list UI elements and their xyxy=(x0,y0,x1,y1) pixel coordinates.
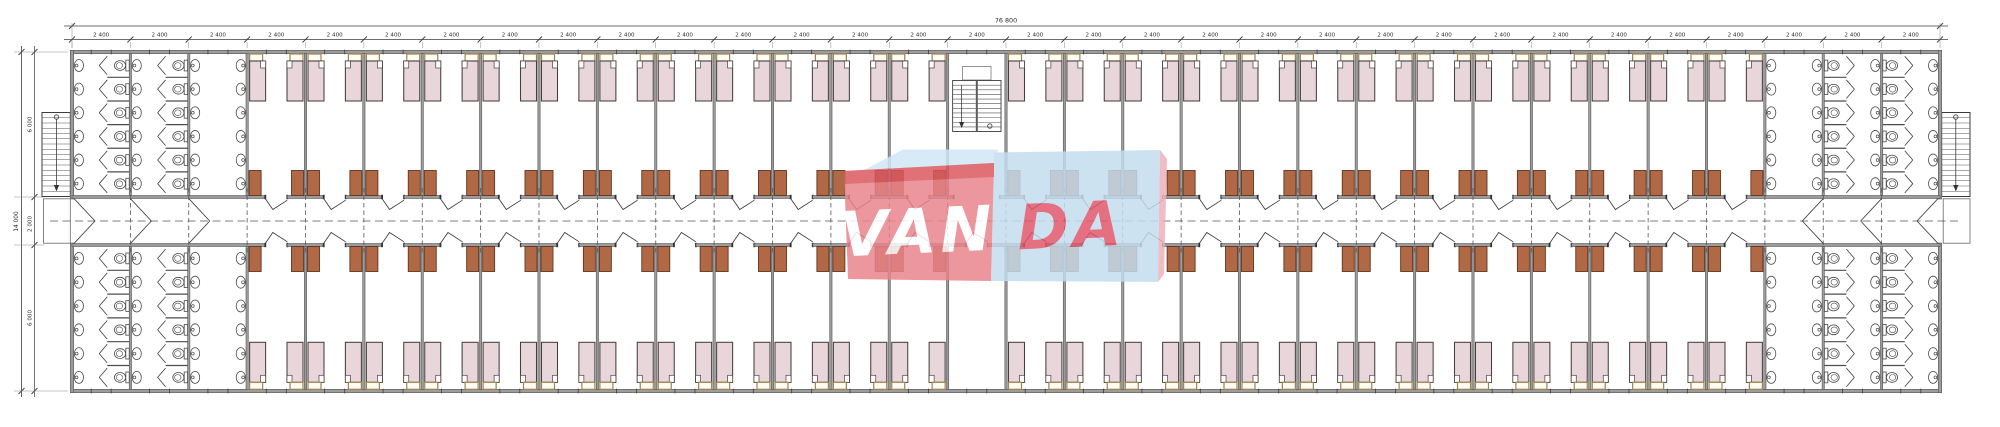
stall-door xyxy=(99,354,107,363)
room-door-swing xyxy=(1550,199,1572,210)
toilet-bowl-inner xyxy=(116,327,122,333)
room xyxy=(1592,233,1646,390)
wall xyxy=(1938,243,1941,393)
bed-pillow-fold xyxy=(1662,375,1667,382)
sink-icon xyxy=(1871,252,1880,264)
room xyxy=(658,233,712,390)
sink-icon xyxy=(191,130,200,142)
module-dim-label: 2 400 xyxy=(385,32,401,38)
wardrobe xyxy=(833,171,845,196)
sink-icon xyxy=(1812,252,1821,264)
module-dim-label: 2 400 xyxy=(327,32,343,38)
room xyxy=(1242,54,1296,210)
toilet-tank xyxy=(1824,107,1827,118)
bedside-locker xyxy=(1125,54,1138,61)
room xyxy=(1709,54,1763,210)
sink-icon xyxy=(1767,130,1776,142)
wall xyxy=(1297,54,1299,196)
bed-pillow-fold xyxy=(462,61,467,68)
stall-door xyxy=(99,80,107,89)
room xyxy=(1300,54,1354,210)
bedside-locker xyxy=(1633,382,1646,389)
wardrobe xyxy=(1226,171,1238,196)
toilet-bowl-inner xyxy=(175,86,181,92)
bedside-locker xyxy=(348,54,361,61)
sink-icon xyxy=(236,276,245,288)
wall xyxy=(713,247,715,390)
bed-pillow-fold xyxy=(669,375,674,382)
bed-pillow-fold xyxy=(553,61,558,68)
sink-icon xyxy=(1767,348,1776,360)
bedside-locker xyxy=(348,382,361,389)
room-door-swing xyxy=(1258,233,1280,244)
bedside-locker xyxy=(1359,54,1372,61)
toilet-bowl-inner xyxy=(116,157,122,163)
door-jamb xyxy=(615,243,617,247)
sink-icon xyxy=(132,276,141,288)
stall-door xyxy=(1846,249,1854,258)
sink-icon xyxy=(236,348,245,360)
stall-door xyxy=(1846,80,1854,89)
stall-door xyxy=(1905,89,1913,98)
corridor-door-swing xyxy=(130,199,151,221)
wall xyxy=(1880,247,1882,390)
door-jamb xyxy=(1257,195,1259,199)
bedside-locker xyxy=(308,54,321,61)
stall-door xyxy=(1905,104,1913,113)
room xyxy=(1475,233,1529,390)
toilet-tank xyxy=(184,60,187,71)
wardrobe xyxy=(408,247,420,272)
wardrobe xyxy=(350,171,362,196)
wall xyxy=(1822,54,1824,196)
stall-door xyxy=(1905,127,1913,136)
bed-pillow-fold xyxy=(1746,61,1751,68)
module-dim-label: 2 400 xyxy=(1144,32,1160,38)
sink-icon xyxy=(191,276,200,288)
bed-pillow-fold xyxy=(1513,61,1518,68)
stall-door xyxy=(1905,184,1913,193)
room xyxy=(249,54,303,210)
room xyxy=(716,54,770,210)
bedside-locker xyxy=(1282,54,1295,61)
corridor-door-swing xyxy=(1861,199,1882,221)
wall xyxy=(304,247,306,390)
bed-pillow-fold xyxy=(345,375,350,382)
bed-pillow-fold xyxy=(1370,375,1375,382)
toilet-tank xyxy=(1883,60,1886,71)
sink-icon xyxy=(74,252,83,264)
wall xyxy=(1355,54,1357,196)
door-jamb xyxy=(381,195,383,199)
bed-pillow-fold xyxy=(345,61,350,68)
bedside-locker xyxy=(1691,382,1704,389)
door-jamb xyxy=(1665,243,1667,247)
sink-icon xyxy=(1812,324,1821,336)
bedside-locker xyxy=(1651,54,1664,61)
room-door-swing xyxy=(1491,233,1513,244)
stall-door xyxy=(1846,151,1854,160)
door-jamb xyxy=(1490,195,1492,199)
bedside-locker xyxy=(366,382,379,389)
bed-pillow-fold xyxy=(1571,61,1576,68)
bathroom-right xyxy=(1767,56,1938,386)
stair-start-marker xyxy=(54,115,58,119)
room-door-swing xyxy=(791,199,813,210)
bedside-locker xyxy=(1107,382,1120,389)
bedside-locker xyxy=(1341,54,1354,61)
toilet-bowl-inner xyxy=(1831,256,1837,262)
stall-door xyxy=(1846,330,1854,339)
toilet-tank xyxy=(126,324,129,335)
module-dim-label: 2 400 xyxy=(910,32,926,38)
sink-icon xyxy=(236,300,245,312)
room-door-swing xyxy=(674,233,696,244)
wardrobe xyxy=(1709,171,1721,196)
wardrobe xyxy=(642,247,654,272)
sink-icon xyxy=(1871,107,1880,119)
sink-icon xyxy=(132,252,141,264)
wardrobe xyxy=(483,247,495,272)
wardrobe xyxy=(1576,171,1588,196)
wardrobe xyxy=(1576,247,1588,272)
bed-pillow-fold xyxy=(1020,375,1025,382)
door-jamb xyxy=(1432,243,1434,247)
bed-pillow-fold xyxy=(1195,61,1200,68)
sink-icon xyxy=(1929,324,1938,336)
toilet-bowl-inner xyxy=(1831,86,1837,92)
bedside-locker xyxy=(425,382,438,389)
sink-icon xyxy=(1812,348,1821,360)
sink-icon xyxy=(236,130,245,142)
bedside-locker xyxy=(932,382,945,389)
bedside-locker xyxy=(1166,382,1179,389)
wardrobe xyxy=(1417,171,1429,196)
wardrobe xyxy=(817,247,829,272)
room-door-swing xyxy=(324,233,346,244)
room xyxy=(308,54,362,210)
stall-door xyxy=(1905,306,1913,315)
stair-center xyxy=(953,67,1001,132)
wardrobe xyxy=(541,247,553,272)
stall-door xyxy=(99,127,107,136)
sink-icon xyxy=(132,60,141,72)
stall-door xyxy=(1846,273,1854,282)
bedside-locker xyxy=(1417,382,1430,389)
room-door-swing xyxy=(1199,233,1221,244)
room xyxy=(541,233,595,390)
stair-start-marker xyxy=(988,124,992,128)
sink-icon xyxy=(132,107,141,119)
toilet-bowl-inner xyxy=(175,157,181,163)
wall xyxy=(1238,54,1240,196)
stall-door xyxy=(158,104,166,113)
wall xyxy=(1747,244,1940,247)
bed-pillow-fold xyxy=(1455,375,1460,382)
room-door-swing xyxy=(1666,199,1688,210)
bed-pillow-fold xyxy=(1104,375,1109,382)
bedside-locker xyxy=(582,54,595,61)
room xyxy=(249,233,303,390)
wardrobe xyxy=(1533,247,1545,272)
wardrobe xyxy=(483,171,495,196)
bed-pillow-fold xyxy=(1603,375,1608,382)
bed-pillow-fold xyxy=(903,375,908,382)
toilet-bowl-inner xyxy=(1831,303,1837,309)
stall-door xyxy=(99,160,107,169)
wardrobe xyxy=(424,247,436,272)
bed-pillow-fold xyxy=(1662,61,1667,68)
sink-icon xyxy=(74,371,83,383)
toilet-tank xyxy=(1883,131,1886,142)
toilet-bowl-inner xyxy=(175,110,181,116)
stair-left xyxy=(42,113,70,244)
bedside-locker xyxy=(250,382,263,389)
bedside-locker xyxy=(833,54,846,61)
room-door-swing xyxy=(1725,199,1747,210)
sink-icon xyxy=(1929,276,1938,288)
wall xyxy=(538,247,540,390)
room-door-swing xyxy=(440,199,462,210)
bedside-locker xyxy=(1633,54,1646,61)
toilet-bowl-inner xyxy=(1889,279,1895,285)
wardrobe xyxy=(249,247,261,272)
bed-pillow-fold xyxy=(1396,375,1401,382)
bedside-locker xyxy=(1184,382,1197,389)
bed-pillow-fold xyxy=(929,375,934,382)
bed-pillow-fold xyxy=(436,61,441,68)
bed-pillow-fold xyxy=(728,61,733,68)
bed-pillow-fold xyxy=(1455,61,1460,68)
sink-icon xyxy=(1767,83,1776,95)
room-door-swing xyxy=(1608,233,1630,244)
wall xyxy=(771,247,773,390)
wardrobe xyxy=(1517,247,1529,272)
wardrobe xyxy=(308,247,320,272)
room-door-swing xyxy=(732,199,754,210)
stall-door xyxy=(99,377,107,386)
stall-door xyxy=(1905,354,1913,363)
module-dim-label: 2 400 xyxy=(1786,32,1802,38)
wardrobe xyxy=(1242,247,1254,272)
room xyxy=(483,233,537,390)
toilet-tank xyxy=(184,253,187,264)
door-jamb xyxy=(1374,195,1376,199)
sink-icon xyxy=(1929,60,1938,72)
room xyxy=(541,54,595,210)
wardrobe xyxy=(292,171,304,196)
stall-door xyxy=(99,104,107,113)
room-door-swing xyxy=(732,233,754,244)
bedside-locker xyxy=(308,382,321,389)
toilet-bowl-inner xyxy=(175,181,181,187)
toilet-bowl-inner xyxy=(1889,110,1895,116)
bed-pillow-fold xyxy=(521,61,526,68)
wardrobe xyxy=(716,171,728,196)
sink-icon xyxy=(191,178,200,190)
door-jamb xyxy=(264,195,266,199)
room-door-swing xyxy=(265,199,287,210)
bedside-locker xyxy=(600,54,613,61)
bedside-locker xyxy=(465,382,478,389)
toilet-tank xyxy=(1883,155,1886,166)
wardrobe xyxy=(350,247,362,272)
sink-icon xyxy=(1871,60,1880,72)
bed-pillow-fold xyxy=(1513,375,1518,382)
bed-pillow-fold xyxy=(754,61,759,68)
bed-pillow-fold xyxy=(871,61,876,68)
sink-icon xyxy=(1767,60,1776,72)
module-dim-label: 2 400 xyxy=(268,32,284,38)
room-door-swing xyxy=(1199,199,1221,210)
toilet-tank xyxy=(184,277,187,288)
wall xyxy=(655,247,657,390)
bed-pillow-fold xyxy=(436,375,441,382)
stall-door xyxy=(99,258,107,267)
sink-icon xyxy=(1812,300,1821,312)
stall-door xyxy=(99,89,107,98)
wardrobe xyxy=(1167,247,1179,272)
toilet-bowl-inner xyxy=(1831,63,1837,69)
stall-door xyxy=(99,56,107,65)
module-dim-label: 2 400 xyxy=(502,32,518,38)
door-jamb xyxy=(1490,243,1492,247)
stall-door xyxy=(1846,321,1854,330)
bed-pillow-fold xyxy=(1163,375,1168,382)
toilet-tank xyxy=(1824,131,1827,142)
stall-door xyxy=(158,258,166,267)
bedside-locker xyxy=(1341,382,1354,389)
room-door-swing xyxy=(499,199,521,210)
wardrobe xyxy=(658,171,670,196)
stair-arrow xyxy=(54,185,59,192)
door-jamb xyxy=(323,195,325,199)
wardrobe xyxy=(1401,247,1413,272)
wall xyxy=(479,54,481,196)
stair-upper-landing xyxy=(963,67,991,81)
stall-door xyxy=(1905,321,1913,330)
stall-door xyxy=(99,113,107,122)
stall-door xyxy=(1905,273,1913,282)
sink-icon xyxy=(1767,324,1776,336)
bed-pillow-fold xyxy=(377,375,382,382)
bedside-locker xyxy=(290,382,303,389)
stall-door xyxy=(158,151,166,160)
toilet-bowl-inner xyxy=(116,303,122,309)
toilet-tank xyxy=(184,178,187,189)
bed-pillow-fold xyxy=(494,375,499,382)
sink-icon xyxy=(236,371,245,383)
wardrobe xyxy=(775,247,787,272)
door-jamb xyxy=(1724,195,1726,199)
stall-door xyxy=(1905,174,1913,183)
bedside-locker xyxy=(250,54,263,61)
wardrobe xyxy=(1751,171,1763,196)
bedside-locker xyxy=(932,54,945,61)
wardrobe xyxy=(467,171,479,196)
stall-door xyxy=(1905,282,1913,291)
room xyxy=(599,54,653,210)
bedside-locker xyxy=(1282,382,1295,389)
toilet-bowl-inner xyxy=(116,351,122,357)
bedside-locker xyxy=(1300,54,1313,61)
bedside-locker xyxy=(1709,54,1722,61)
bed-pillow-fold xyxy=(1630,375,1635,382)
bedside-locker xyxy=(1516,54,1529,61)
wall xyxy=(1647,247,1649,390)
bed-pillow-fold xyxy=(1046,375,1051,382)
stall-door xyxy=(1846,127,1854,136)
door-jamb xyxy=(1724,243,1726,247)
door-jamb xyxy=(556,195,558,199)
room-door-swing xyxy=(1491,199,1513,210)
toilet-bowl-inner xyxy=(1831,134,1837,140)
bed-pillow-fold xyxy=(754,375,759,382)
wall xyxy=(1880,54,1882,196)
sink-icon xyxy=(236,324,245,336)
bedside-locker xyxy=(483,54,496,61)
bedside-locker xyxy=(407,54,420,61)
wardrobe xyxy=(1401,171,1413,196)
bed-pillow-fold xyxy=(287,61,292,68)
room xyxy=(1650,54,1704,210)
wardrobe xyxy=(467,247,479,272)
sink-icon xyxy=(74,154,83,166)
door-jamb xyxy=(731,195,733,199)
bedside-locker xyxy=(600,382,613,389)
wardrobe xyxy=(292,247,304,272)
toilet-tank xyxy=(1883,107,1886,118)
toilet-tank xyxy=(1824,348,1827,359)
sink-icon xyxy=(1929,348,1938,360)
toilet-tank xyxy=(126,372,129,383)
wall xyxy=(1647,54,1649,196)
wall xyxy=(304,54,306,196)
wall xyxy=(771,54,773,196)
wall xyxy=(70,50,73,199)
sink-icon xyxy=(1767,154,1776,166)
wall xyxy=(1180,247,1182,390)
bedside-locker xyxy=(524,54,537,61)
room xyxy=(716,233,770,390)
sink-icon xyxy=(1929,178,1938,190)
bedside-locker xyxy=(833,382,846,389)
sink-icon xyxy=(1812,60,1821,72)
wardrobe xyxy=(366,171,378,196)
wall xyxy=(1472,247,1474,390)
door-jamb xyxy=(790,243,792,247)
wall xyxy=(1355,247,1357,390)
stall-door xyxy=(158,174,166,183)
bed-pillow-fold xyxy=(1688,61,1693,68)
sink-icon xyxy=(1871,300,1880,312)
segment-dim-label: 6 000 xyxy=(28,310,34,326)
bed-pillow-fold xyxy=(1688,375,1693,382)
sink-icon xyxy=(74,324,83,336)
toilet-bowl-inner xyxy=(116,256,122,262)
module-dim-label: 2 400 xyxy=(1086,32,1102,38)
toilet-tank xyxy=(1883,372,1886,383)
wall xyxy=(1705,54,1707,196)
wardrobe xyxy=(1751,247,1763,272)
sink-icon xyxy=(236,252,245,264)
toilet-bowl-inner xyxy=(1831,181,1837,187)
room-door-swing xyxy=(1374,199,1396,210)
bedside-locker xyxy=(699,382,712,389)
bed-pillow-fold xyxy=(903,61,908,68)
stall-door xyxy=(1846,113,1854,122)
sink-icon xyxy=(74,348,83,360)
